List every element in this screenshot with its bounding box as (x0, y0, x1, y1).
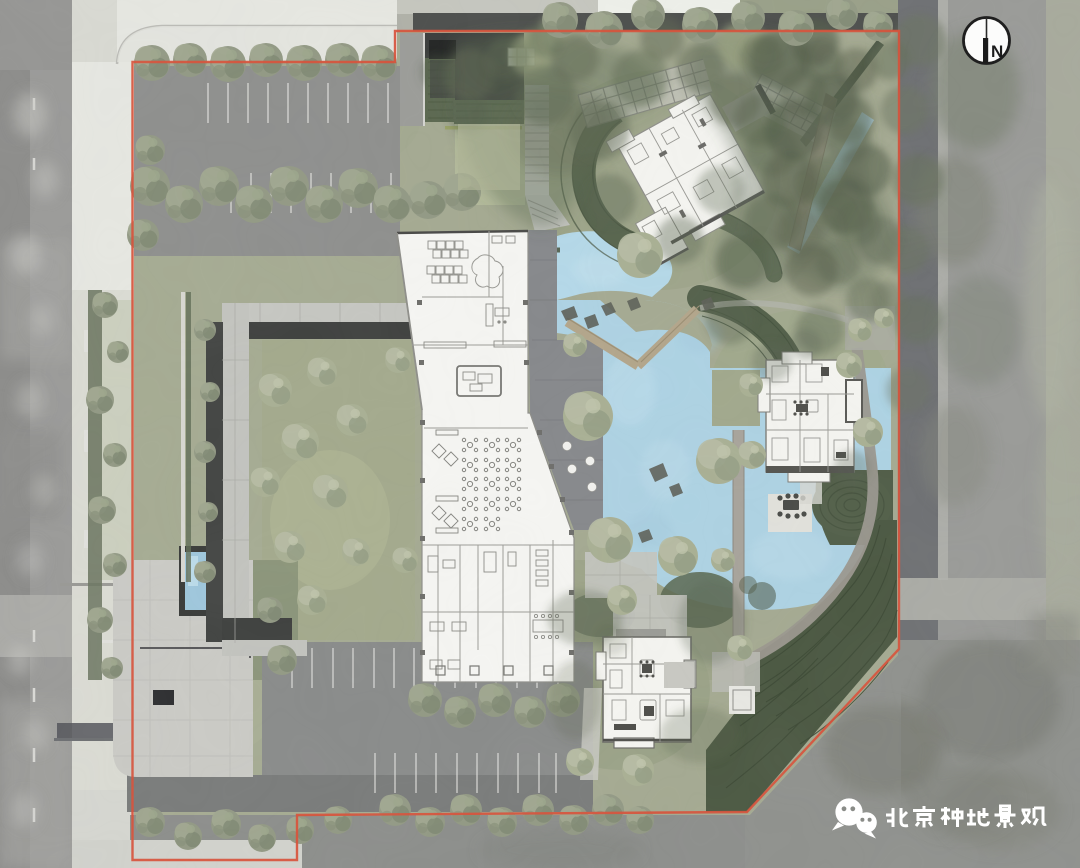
svg-text:N: N (991, 42, 1003, 61)
